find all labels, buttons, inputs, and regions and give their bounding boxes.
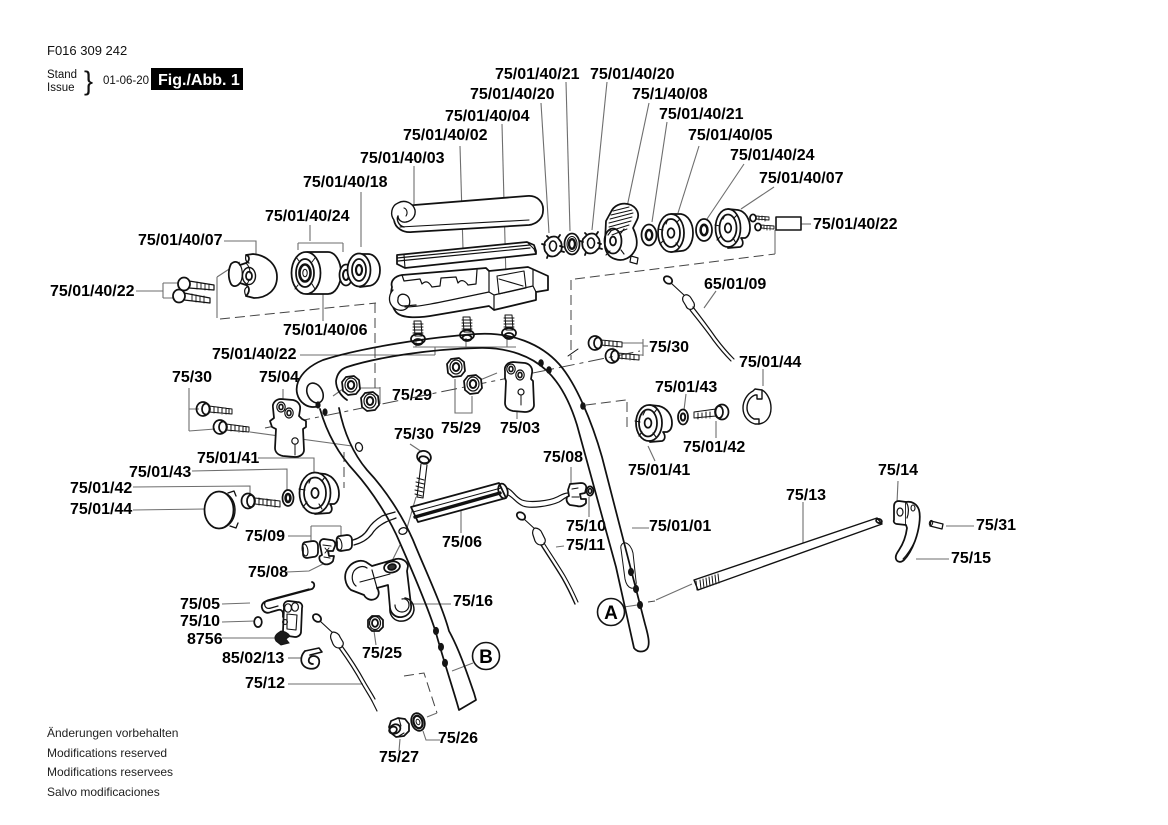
svg-text:Issue: Issue — [47, 82, 75, 94]
svg-text:75/08: 75/08 — [248, 564, 288, 581]
svg-text:75/31: 75/31 — [976, 517, 1016, 534]
svg-text:Salvo modificaciones: Salvo modificaciones — [47, 785, 160, 799]
svg-text:75/08: 75/08 — [543, 449, 583, 466]
svg-text:75/13: 75/13 — [786, 487, 826, 504]
svg-text:75/26: 75/26 — [438, 730, 478, 747]
svg-text:75/01/40/21: 75/01/40/21 — [495, 66, 580, 83]
svg-text:75/29: 75/29 — [392, 387, 432, 404]
svg-text:75/1/40/08: 75/1/40/08 — [632, 86, 708, 103]
svg-text:}: } — [84, 66, 93, 96]
svg-text:75/01/40/21: 75/01/40/21 — [659, 106, 744, 123]
svg-text:B: B — [479, 647, 493, 668]
svg-text:75/01/40/02: 75/01/40/02 — [403, 127, 488, 144]
svg-text:A: A — [604, 603, 618, 624]
svg-text:Modifications reserved: Modifications reserved — [47, 746, 167, 760]
svg-text:Änderungen vorbehalten: Änderungen vorbehalten — [47, 726, 178, 740]
svg-text:75/10: 75/10 — [566, 518, 606, 535]
svg-text:75/01/40/24: 75/01/40/24 — [265, 208, 350, 225]
svg-text:01-06-20: 01-06-20 — [103, 75, 149, 87]
svg-text:75/01/40/05: 75/01/40/05 — [688, 127, 773, 144]
svg-text:65/01/09: 65/01/09 — [704, 276, 766, 293]
svg-text:F016 309 242: F016 309 242 — [47, 43, 127, 58]
svg-text:8756: 8756 — [187, 631, 223, 648]
svg-text:75/01/43: 75/01/43 — [129, 464, 191, 481]
svg-text:75/01/40/22: 75/01/40/22 — [212, 346, 297, 363]
svg-text:75/01/01: 75/01/01 — [649, 518, 711, 535]
svg-text:Modifications reservees: Modifications reservees — [47, 765, 173, 779]
svg-text:75/01/40/20: 75/01/40/20 — [470, 86, 555, 103]
svg-text:75/01/44: 75/01/44 — [70, 501, 132, 518]
svg-text:75/03: 75/03 — [500, 420, 540, 437]
svg-text:75/01/42: 75/01/42 — [70, 480, 132, 497]
svg-text:75/09: 75/09 — [245, 528, 285, 545]
svg-text:75/30: 75/30 — [172, 369, 212, 386]
svg-text:85/02/13: 85/02/13 — [222, 650, 284, 667]
svg-text:75/30: 75/30 — [394, 426, 434, 443]
svg-text:75/01/41: 75/01/41 — [197, 450, 259, 467]
svg-text:75/25: 75/25 — [362, 645, 402, 662]
svg-text:75/11: 75/11 — [566, 537, 605, 554]
svg-text:75/16: 75/16 — [453, 593, 493, 610]
svg-text:75/01/40/22: 75/01/40/22 — [813, 216, 898, 233]
svg-text:75/15: 75/15 — [951, 550, 991, 567]
svg-text:75/01/40/24: 75/01/40/24 — [730, 147, 815, 164]
svg-text:75/27: 75/27 — [379, 749, 419, 766]
svg-text:75/01/40/07: 75/01/40/07 — [759, 170, 844, 187]
svg-text:75/14: 75/14 — [878, 462, 918, 479]
svg-text:75/10: 75/10 — [180, 613, 220, 630]
svg-text:75/01/41: 75/01/41 — [628, 462, 690, 479]
svg-text:75/30: 75/30 — [649, 339, 689, 356]
svg-text:75/12: 75/12 — [245, 675, 285, 692]
svg-text:75/05: 75/05 — [180, 596, 220, 613]
svg-text:75/01/40/07: 75/01/40/07 — [138, 232, 223, 249]
svg-text:75/01/40/20: 75/01/40/20 — [590, 66, 675, 83]
svg-text:75/01/40/22: 75/01/40/22 — [50, 283, 135, 300]
svg-text:75/01/40/06: 75/01/40/06 — [283, 322, 368, 339]
svg-text:75/01/40/18: 75/01/40/18 — [303, 174, 388, 191]
svg-text:75/01/40/04: 75/01/40/04 — [445, 108, 530, 125]
svg-text:Stand: Stand — [47, 69, 77, 81]
svg-text:75/01/42: 75/01/42 — [683, 439, 745, 456]
svg-text:75/01/43: 75/01/43 — [655, 379, 717, 396]
svg-text:75/06: 75/06 — [442, 534, 482, 551]
svg-text:Fig./Abb. 1: Fig./Abb. 1 — [158, 72, 240, 89]
svg-text:75/04: 75/04 — [259, 369, 299, 386]
svg-text:75/01/40/03: 75/01/40/03 — [360, 150, 445, 167]
svg-text:75/01/44: 75/01/44 — [739, 354, 801, 371]
svg-text:75/29: 75/29 — [441, 420, 481, 437]
